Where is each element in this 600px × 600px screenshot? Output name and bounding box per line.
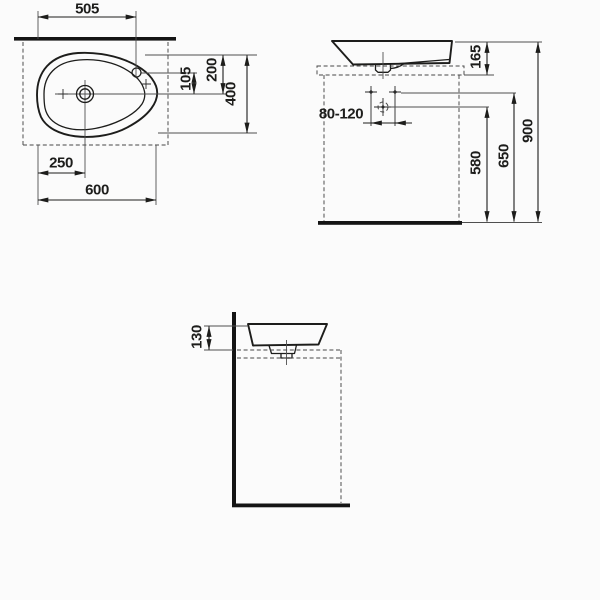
technical-drawing-sheet: 505 105 200 400 250 600 80-120 165 580 6… (0, 0, 600, 600)
dim-250-label: 250 (49, 156, 73, 171)
dim-650-label: 650 (497, 144, 512, 168)
waste-pipe-point (381, 105, 385, 109)
cabinet-front-dashed (324, 75, 459, 221)
center-cross-left (58, 89, 68, 99)
dim-400-label: 400 (224, 82, 239, 106)
dim-165-label: 165 (469, 45, 484, 69)
center-cross-right (141, 79, 151, 89)
dim-900-label: 900 (521, 119, 536, 143)
basin-inner-outline (44, 60, 145, 130)
supply-point-right (393, 90, 398, 95)
dim-600-label: 600 (85, 183, 109, 198)
floor-line-front (318, 221, 462, 225)
floor-line-side (232, 504, 350, 508)
front-view (317, 41, 542, 225)
dim-505-label: 505 (75, 2, 99, 17)
dim-80-120-label: 80-120 (319, 107, 363, 122)
drain-fitting-front (376, 64, 404, 72)
basin-outer-outline (37, 53, 157, 137)
dim-200-label: 200 (205, 58, 220, 82)
side-view (204, 312, 350, 507)
drain-fitting-side (269, 345, 297, 358)
plan-view (14, 11, 257, 205)
cabinet-side-dashed (237, 350, 341, 503)
drawing-linework (0, 0, 600, 600)
faucet-hole (132, 68, 141, 77)
dim-130-label: 130 (190, 325, 205, 349)
supply-point-left (369, 90, 374, 95)
dim-105-label: 105 (179, 67, 194, 91)
countertop-outline-dashed (23, 42, 168, 145)
dim-580-label: 580 (469, 151, 484, 175)
wall-line-side (232, 312, 236, 507)
basin-side-outline (248, 324, 327, 346)
